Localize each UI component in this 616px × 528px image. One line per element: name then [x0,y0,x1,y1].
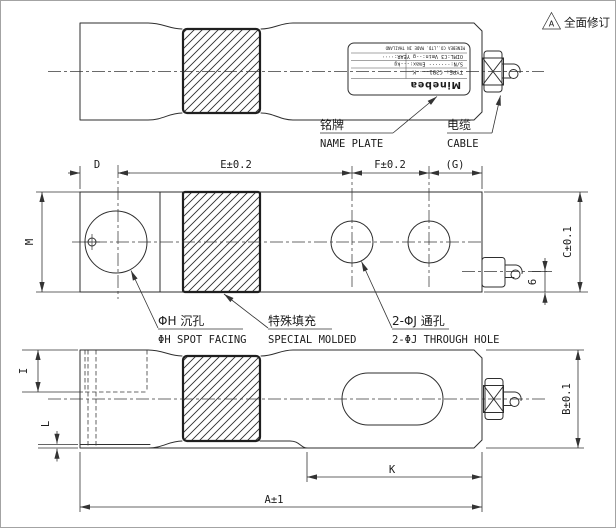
dim-D: D [94,159,100,171]
bottom-view: B±0.1 I L K A±1 [18,350,584,512]
engineering-drawing-page: Minebea TYPE: C3B1----K S/N:······· Emax… [0,0,616,528]
cable-label-zh: 电缆 [447,118,471,132]
dim-B: B±0.1 [561,383,573,415]
dim-I: I [18,368,30,374]
dim-E: E±0.2 [220,159,252,171]
name-plate-detail-row: OIML:C3 Vmin:--g YEAR:···· [382,53,463,59]
name-plate: Minebea TYPE: C3B1----K S/N:······· Emax… [348,43,470,95]
spot-facing-label-en: ΦH SPOT FACING [158,334,247,346]
revision-note: A 全面修订 [543,13,611,30]
dim-C: C±0.1 [562,226,574,258]
bottom-view-dimensions: B±0.1 I L K A±1 [18,350,584,512]
dim-K: K [389,464,396,476]
dim-A: A±1 [265,494,284,506]
spot-facing-label-zh: ΦH 沉孔 [158,314,204,328]
dim-F: F±0.2 [374,159,406,171]
dim-M: M [24,239,36,245]
name-plate-callout: 铭牌 NAME PLATE [320,97,437,151]
revision-text: 全面修订 [564,16,610,30]
revision-letter: A [549,20,555,29]
cable-end-icon [509,70,518,79]
special-molded-label-zh: 特殊填充 [268,313,316,328]
cable-gland-front [482,258,522,288]
front-view: D E±0.2 F±0.2 (G) M C±0.1 6 ΦH 沉孔 ΦH SPO… [24,159,588,346]
name-plate-label-en: NAME PLATE [320,138,383,150]
name-plate-label-zh: 铭牌 [320,117,344,132]
top-view: Minebea TYPE: C3B1----K S/N:······· Emax… [48,23,544,150]
through-hole-callout: 2-ΦJ 通孔 2-ΦJ THROUGH HOLE [362,262,500,347]
drawing-canvas: Minebea TYPE: C3B1----K S/N:······· Emax… [0,0,616,528]
name-plate-maker-row: MINEBEA CO.,LTD. MADE IN THAILAND [385,46,465,51]
special-molded-label-en: SPECIAL MOLDED [268,334,357,346]
name-plate-content: Minebea TYPE: C3B1----K S/N:······· Emax… [351,46,467,91]
cable-label-en: CABLE [447,138,479,150]
front-view-centerlines [72,165,547,299]
dim-G: (G) [446,159,465,171]
dim-L: L [40,421,52,427]
name-plate-type-row: TYPE: C3B1----K [412,69,463,75]
name-plate-sn-row: S/N:······· Emax:---kg [394,61,463,67]
cable-callout: 电缆 CABLE [447,96,501,151]
dim-cable-offset: 6 [527,279,539,285]
molded-block-hatch [183,356,260,441]
molded-block-hatch [183,29,260,113]
through-hole-label-zh: 2-ΦJ 通孔 [392,314,445,328]
through-hole-label-en: 2-ΦJ THROUGH HOLE [392,334,499,346]
name-plate-logo: Minebea [410,79,461,90]
front-view-dimensions: D E±0.2 F±0.2 (G) M C±0.1 6 [24,159,588,305]
